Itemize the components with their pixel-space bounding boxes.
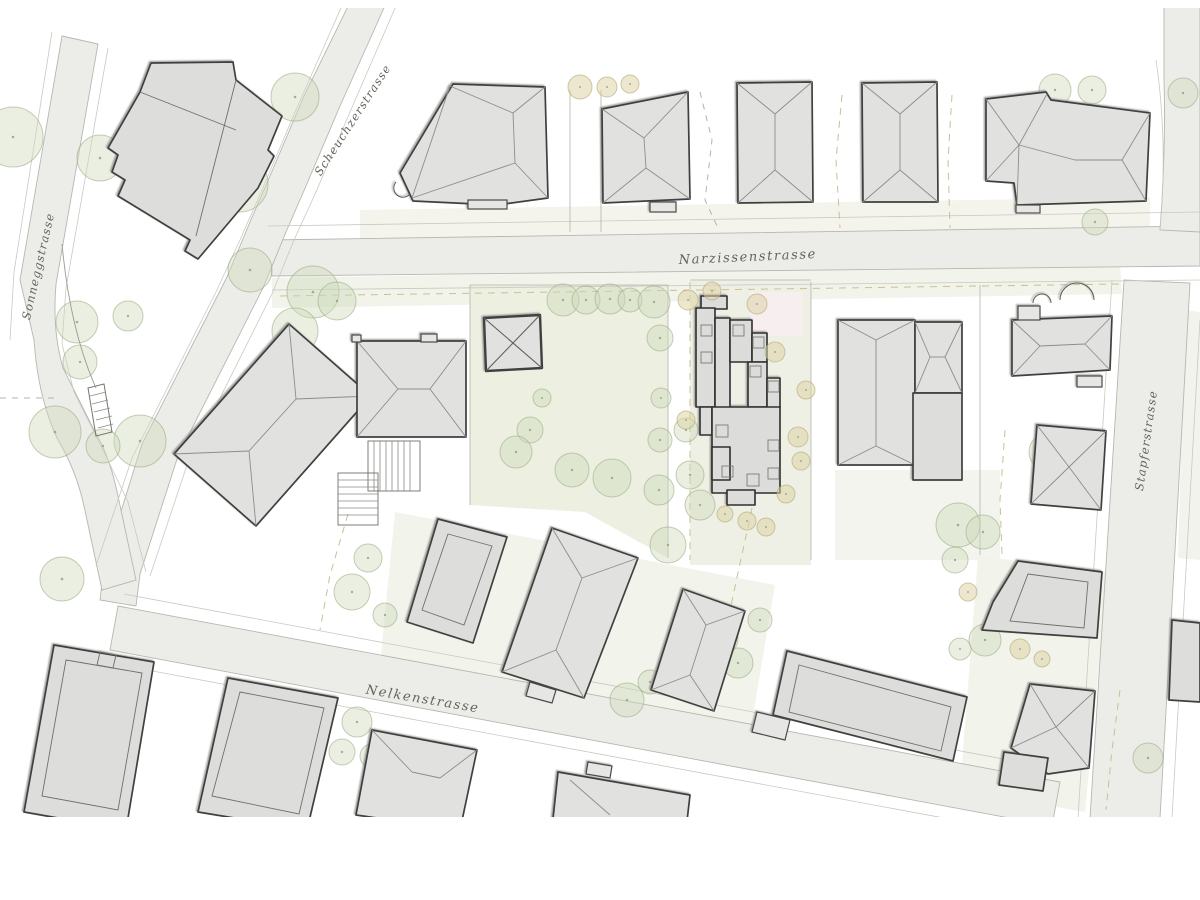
building-hip-stapfer-top: [1012, 283, 1112, 387]
street-stapferstrasse-north: [1160, 0, 1200, 232]
site-plan-svg: Scheuchzerstrasse Sonneggstrasse Narziss…: [0, 0, 1200, 900]
building-pyramid-east: [1031, 425, 1106, 510]
building-flat-southwest-1: [24, 645, 154, 830]
building-complex-topright: [986, 92, 1150, 213]
building-pavilion: [484, 315, 542, 371]
building-hip-b: [602, 92, 690, 212]
building-east-of-stapfer: [1169, 620, 1200, 702]
building-hip-a: [394, 84, 548, 209]
building-hip-c: [737, 82, 813, 203]
building-hip-east-main: [838, 320, 962, 480]
building-hip-south-partial-1: [356, 730, 477, 830]
building-hip-d: [862, 82, 938, 202]
school-stairs: [338, 441, 420, 525]
building-flat-southwest-2: [198, 678, 338, 830]
site-plan: Scheuchzerstrasse Sonneggstrasse Narziss…: [0, 0, 1200, 900]
